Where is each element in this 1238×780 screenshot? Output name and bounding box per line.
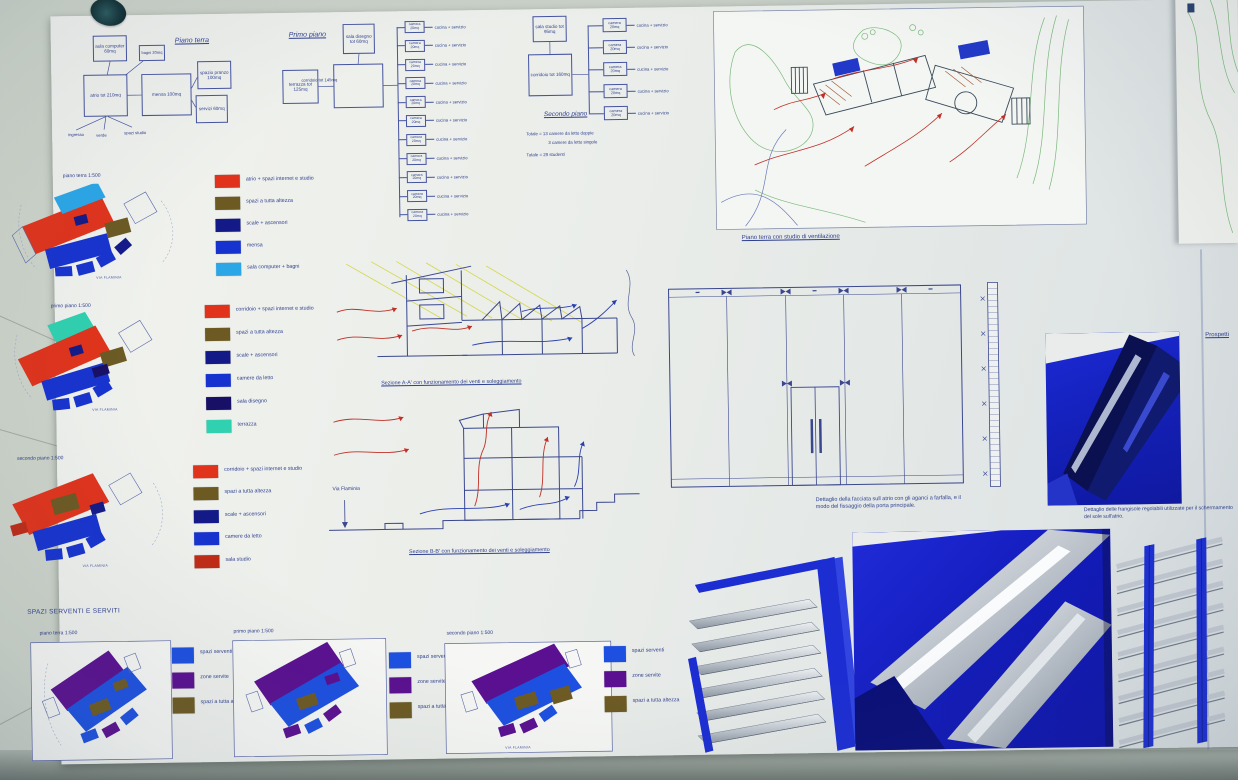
serventi-plan-label-3: secondo piano 1:500 xyxy=(447,630,494,637)
louver-render-side xyxy=(1108,533,1238,750)
camera-service-label: cucina + servizio xyxy=(637,66,668,71)
camera-box: camera 20mq xyxy=(407,190,427,202)
camera-box: camera 20mq xyxy=(406,115,426,127)
connector-stub xyxy=(399,177,407,178)
legend-label: scale + ascensori xyxy=(246,217,341,227)
camera-service-label: cucina + servizio xyxy=(436,118,467,123)
frangisole-photo xyxy=(1045,332,1182,506)
legend-swatch xyxy=(604,646,626,662)
legend-swatch xyxy=(215,219,240,232)
camera-service-label: cucina + servizio xyxy=(436,99,467,104)
camera-service-label: cucina + servizio xyxy=(437,193,468,198)
serventi-plan-drawing-2 xyxy=(232,637,389,757)
connector-stub xyxy=(426,101,434,102)
poster-photo: Prospetti Piano terra aula computer 60mq… xyxy=(0,0,1238,780)
site-plan-drawing xyxy=(712,5,1087,230)
camera-service-label: cucina + servizio xyxy=(435,80,466,85)
serventi-plan-drawing-1 xyxy=(30,640,174,762)
legend-label: corridoio + spazi internet e studio xyxy=(236,303,331,313)
totals-line: Totale = 29 studenti xyxy=(526,152,564,158)
road-label: VIA FLAMINIA xyxy=(92,407,118,411)
camera-row: camera 20mq cucina + servizio xyxy=(399,208,468,221)
camera-row: camera 20mq cucina + servizio xyxy=(398,152,467,165)
org-title: Secondo piano xyxy=(544,110,587,118)
plan-label-secondo-piano: secondo piano 1:500 xyxy=(17,455,64,462)
camera-service-label: cucina + servizio xyxy=(437,212,468,217)
camera-row: camera 20mq cucina + servizio xyxy=(588,39,668,54)
connector-stub xyxy=(427,195,435,196)
legend-swatch xyxy=(206,420,231,433)
room-box-sala-studio: sala studio tot 95mq xyxy=(532,16,566,43)
connector-stub xyxy=(427,158,435,159)
plan-label-primo-piano: primo piano 1:500 xyxy=(51,303,91,310)
legend-swatch xyxy=(194,510,219,523)
legend-primo-piano: corridoio + spazi internet e studio spaz… xyxy=(205,303,333,433)
legend-swatch xyxy=(206,397,231,410)
legend-label: sala computer + bagni xyxy=(247,261,342,271)
connector-stub xyxy=(397,45,405,46)
legend-label: scale + ascensori xyxy=(225,508,320,518)
legend-piano-terra: atrio + spazi internet e studio spazi a … xyxy=(215,173,342,276)
section-bb-drawing xyxy=(323,396,645,541)
legend-item: scale + ascensori xyxy=(194,508,320,523)
legend-swatch xyxy=(193,487,218,500)
legend-secondo-piano: corridoio + spazi internet e studio spaz… xyxy=(193,463,321,567)
org-title: Primo piano xyxy=(289,31,326,39)
louver-render-front xyxy=(666,536,864,754)
road-label: VIA FLAMINIA xyxy=(505,745,531,749)
camera-service-label: cucina + servizio xyxy=(637,22,668,27)
stub-label: ingresso xyxy=(68,132,84,137)
facade-detail-caption: Dettaglio della facciata sull atrio con … xyxy=(816,495,971,512)
legend-label: atrio + spazi internet e studio xyxy=(246,173,341,183)
legend-item: camere da letto xyxy=(194,531,320,546)
legend-swatch xyxy=(172,647,194,663)
camera-service-label: cucina + servizio xyxy=(638,88,669,93)
legend-label: scale + ascensori xyxy=(236,349,331,359)
camera-row: camera 20mq cucina + servizio xyxy=(397,39,466,52)
connector-stub xyxy=(425,83,433,84)
road-label: VIA FLAMINIA xyxy=(83,564,109,568)
room-box-bagni: bagni 20mq xyxy=(139,45,165,61)
camera-row: camera 20mq cucina + servizio xyxy=(398,114,467,127)
connector-stub xyxy=(398,121,406,122)
connector-stub xyxy=(427,214,435,215)
legend-swatch xyxy=(205,351,230,364)
connector-stub xyxy=(628,90,636,91)
legend-item: sala studio xyxy=(194,553,320,568)
camera-service-label: cucina + servizio xyxy=(637,44,668,49)
legend-item: spazi a tutta altezza xyxy=(205,326,331,341)
totals-line: 3 camere da letto singole xyxy=(548,139,597,145)
connector-stub xyxy=(627,24,635,25)
org-chart-secondo-piano: sala studio tot 95mq corridoio tot 160mq… xyxy=(518,8,720,166)
camera-box: camera 20mq xyxy=(405,40,425,52)
camera-row: camera 20mq cucina + servizio xyxy=(397,58,466,71)
connector-stub xyxy=(425,64,433,65)
legend-swatch xyxy=(215,197,240,210)
serventi-plan-drawing-3 xyxy=(444,640,614,754)
connector-stub xyxy=(397,64,405,65)
camera-box: camera 20mq xyxy=(407,171,427,183)
contour-sketch xyxy=(1175,0,1238,244)
camera-box: camera 20mq xyxy=(603,62,627,76)
room-box-corridoio: corridoio tot 160mq xyxy=(528,54,573,97)
connector-stub xyxy=(425,26,433,27)
connector-stub xyxy=(399,215,407,216)
camera-box: camera 20mq xyxy=(604,106,628,120)
legend-swatch xyxy=(194,555,219,568)
camera-service-label: cucina + servizio xyxy=(435,61,466,66)
connector-stub xyxy=(399,196,407,197)
connector-stub xyxy=(425,45,433,46)
legend-label: terrazza xyxy=(237,418,332,428)
camera-box: camera 20mq xyxy=(406,96,426,108)
site-plan-caption: Piano terra con studio di ventilazione xyxy=(742,233,840,243)
connector-stub xyxy=(399,158,407,159)
legend-label: spazi a tutta altezza xyxy=(236,326,331,336)
facade-slat-column-detail xyxy=(978,278,1007,490)
poster-board: Prospetti Piano terra aula computer 60mq… xyxy=(0,0,1238,780)
camera-row: camera 20mq cucina + servizio xyxy=(399,171,468,184)
camera-rows-secondo: camera 20mq cucina + servizio camera 20m… xyxy=(587,17,669,120)
connector-stub xyxy=(627,46,635,47)
legend-label: mensa xyxy=(247,239,342,249)
room-box-servizi: servizi 60mq xyxy=(196,95,228,123)
plan-drawing-primo-piano xyxy=(9,308,190,411)
serventi-heading: SPAZI SERVENTI E SERVITI xyxy=(27,607,120,617)
legend-item: sala computer + bagni xyxy=(216,261,342,276)
legend-label: camere da letto xyxy=(225,531,320,541)
camera-rows-primo: camera 20mq cucina + servizio camera 20m… xyxy=(397,20,469,221)
legend-swatch xyxy=(194,532,219,545)
legend-swatch xyxy=(173,697,195,713)
facade-detail-drawing xyxy=(664,277,967,495)
legend-item: atrio + spazi internet e studio xyxy=(215,173,341,188)
legend-swatch xyxy=(389,652,411,668)
room-box-aula-computer: aula computer 60mq xyxy=(93,35,127,62)
room-box-mensa: mensa 100mq xyxy=(141,73,192,116)
legend-swatch xyxy=(605,696,627,712)
legend-item: scale + ascensori xyxy=(205,349,331,364)
legend-item: sala disegno xyxy=(206,395,332,410)
camera-box: camera 20mq xyxy=(405,77,425,89)
camera-row: camera 20mq cucina + servizio xyxy=(588,83,668,98)
road-label: VIA FLAMINIA xyxy=(96,275,122,279)
stub-label: spazi studio xyxy=(124,130,146,135)
legend-swatch xyxy=(216,241,241,254)
frangisole-caption: Dettaglio delle frangisole regolabili ut… xyxy=(1084,505,1236,521)
room-box-spazio-pranzo: spazio pranzo 100mq xyxy=(197,61,231,90)
camera-box: camera 20mq xyxy=(406,134,426,146)
plan-drawing-piano-terra xyxy=(11,182,187,277)
connector-stub xyxy=(398,139,406,140)
plan-label-piano-terra: piano terra 1:500 xyxy=(63,173,101,180)
legend-item: terrazza xyxy=(206,418,332,433)
legend-item: spazi a tutta altezza xyxy=(215,195,341,210)
plan-drawing-secondo-piano xyxy=(3,463,174,566)
camera-row: camera 20mq cucina + servizio xyxy=(587,17,667,32)
legend-swatch xyxy=(172,672,194,688)
legend-item: corridoio + spazi internet e studio xyxy=(193,463,319,478)
camera-row: camera 20mq cucina + servizio xyxy=(398,133,467,146)
legend-swatch xyxy=(390,702,412,718)
legend-label: camere da letto xyxy=(237,372,332,382)
legend-label: corridoio + spazi internet e studio xyxy=(224,463,319,473)
connector-stub xyxy=(397,27,405,28)
connector-stub xyxy=(397,83,405,84)
camera-service-label: cucina + servizio xyxy=(437,174,468,179)
legend-label: sala studio xyxy=(225,553,320,563)
camera-box: camera 20mq xyxy=(603,84,627,98)
camera-box: camera 20mq xyxy=(603,40,627,54)
corridoio-label: corridoio tot 145mq xyxy=(301,78,337,83)
camera-service-label: cucina + servizio xyxy=(638,110,669,115)
legend-item: scale + ascensori xyxy=(215,217,341,232)
camera-row: camera 20mq cucina + servizio xyxy=(399,189,468,202)
camera-service-label: cucina + servizio xyxy=(437,155,468,160)
legend-swatch xyxy=(604,671,626,687)
camera-box: camera 20mq xyxy=(406,152,426,164)
camera-service-label: cucina + servizio xyxy=(436,137,467,142)
legend-swatch xyxy=(389,677,411,693)
legend-label: spazi a tutta altezza xyxy=(246,195,341,205)
legend-swatch xyxy=(193,465,218,478)
legend-item: mensa xyxy=(216,239,342,254)
connector-stub xyxy=(426,120,434,121)
camera-service-label: cucina + servizio xyxy=(435,24,466,29)
section-aa-drawing xyxy=(331,258,643,378)
connector-stub xyxy=(627,68,635,69)
camera-row: camera 20mq cucina + servizio xyxy=(589,105,669,120)
stub-label: verde xyxy=(96,133,107,138)
legend-swatch xyxy=(205,328,230,341)
camera-service-label: cucina + servizio xyxy=(435,43,466,48)
legend-item: corridoio + spazi internet e studio xyxy=(205,303,331,318)
legend-item: spazi a tutta altezza xyxy=(193,486,319,501)
legend-swatch xyxy=(206,374,231,387)
serventi-plan-label-2: primo piano 1:500 xyxy=(233,628,273,635)
room-box-terrazza: terrazza tot 125mq xyxy=(282,69,319,104)
connector-stub xyxy=(426,139,434,140)
camera-row: camera 20mq cucina + servizio xyxy=(398,95,467,108)
legend-swatch xyxy=(216,263,241,276)
camera-box: camera 20mq xyxy=(407,209,427,221)
camera-box: camera 20mq xyxy=(602,18,626,32)
room-box-atrio: atrio tot 210mq xyxy=(83,74,128,117)
connector-stub xyxy=(589,113,604,114)
adjacent-sheet xyxy=(1175,0,1238,244)
legend-label: sala disegno xyxy=(237,395,332,405)
connector-stub xyxy=(588,25,603,26)
legend-item: camere da letto xyxy=(206,372,332,387)
connector-stub xyxy=(628,112,636,113)
camera-box: camera 20mq xyxy=(405,58,425,70)
camera-row: camera 20mq cucina + servizio xyxy=(397,20,466,33)
org-title: Piano terra xyxy=(175,37,209,45)
room-box-sala-disegno: sala disegno tot 60mq xyxy=(343,24,375,54)
prospetti-partial-label: Prospetti xyxy=(1205,331,1229,339)
totals-line: Totale = 13 camere da letto doppie xyxy=(526,130,594,136)
connector-stub xyxy=(589,91,604,92)
louver-render-closeup xyxy=(852,529,1113,751)
connector-stub xyxy=(427,177,435,178)
connector-stub xyxy=(588,47,603,48)
connector-stub xyxy=(398,102,406,103)
connector-stub xyxy=(588,69,603,70)
camera-box: camera 20mq xyxy=(405,21,425,33)
legend-swatch xyxy=(205,305,230,318)
camera-row: camera 20mq cucina + servizio xyxy=(397,77,466,90)
via-flaminia-label: Via Flaminia xyxy=(332,486,360,492)
legend-label: spazi a tutta altezza xyxy=(224,486,319,496)
serventi-plan-label-1: piano terra 1:500 xyxy=(40,630,78,637)
room-box-main xyxy=(333,63,384,108)
camera-row: camera 20mq cucina + servizio xyxy=(588,61,668,76)
legend-swatch xyxy=(215,175,240,188)
